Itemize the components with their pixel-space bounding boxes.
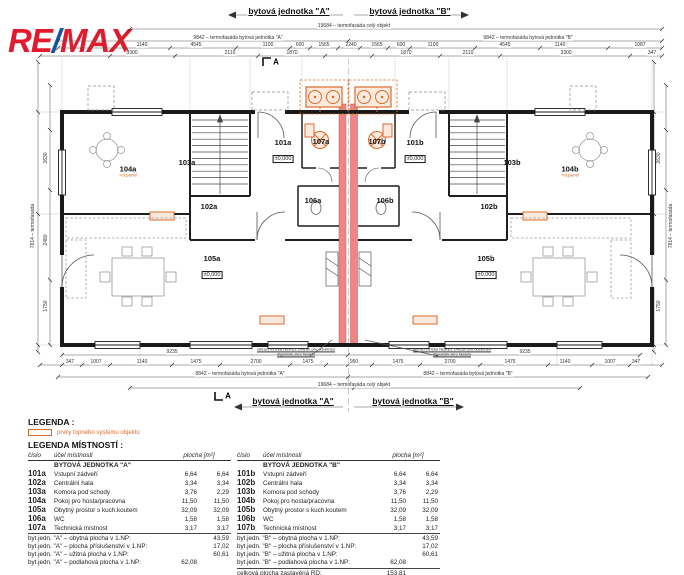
cell-area-1: 3,76 xyxy=(167,489,199,496)
summary-label: byt.jedn. "A" – obytná plocha v 1.NP: xyxy=(28,535,167,542)
summary-row: byt.jedn. "A" – plocha příslušenství v 1… xyxy=(28,543,231,551)
dimension-label: větrací mřížka NEREZ DN160 pro odvětrání… xyxy=(251,347,341,356)
dimension-label: 9235 xyxy=(518,349,531,355)
summary-row: byt.jedn. "B" – plocha příslušenství v 1… xyxy=(237,543,440,551)
room-label: 101b ±0,000 xyxy=(405,139,426,165)
dimension-label: 1565 xyxy=(317,42,330,48)
dimension-label: 1475 xyxy=(503,359,516,365)
summary-value-1: 62,08 xyxy=(167,559,199,566)
room-label: 106a xyxy=(305,197,322,205)
table-row: 102a Centrální hala 3,34 3,34 xyxy=(28,478,231,487)
dimension-label: 4545 xyxy=(498,42,511,48)
cell-number: 103a xyxy=(28,487,54,496)
dimension-label: 9842 – termofasáda bytová jednotka "A" xyxy=(192,35,283,41)
room-number: 105a xyxy=(202,255,223,263)
dimension-label: 347 xyxy=(65,359,75,365)
table-b-summary: byt.jedn. "B" – obytná plocha v 1.NP: 43… xyxy=(237,533,440,567)
dimension-label: 1565 xyxy=(370,42,383,48)
dimension-label: 2480 xyxy=(43,233,49,246)
cell-number: 104b xyxy=(237,496,263,505)
cell-area-1: 3,17 xyxy=(167,525,199,532)
cell-area-2: 1,58 xyxy=(199,516,231,523)
group-unit-a: BYTOVÁ JEDNOTKA "A" xyxy=(28,462,231,469)
summary-value-2: 17,02 xyxy=(199,543,231,550)
dimension-label: 3300 xyxy=(125,50,138,56)
summary-value-2: 43,59 xyxy=(199,535,231,542)
cell-area-2: 6,64 xyxy=(199,471,231,478)
table-b-rows: 101b Vstupní zádveří 6,64 6,64 102b Cent… xyxy=(237,469,440,532)
room-number: 107a xyxy=(313,138,330,146)
col-plocha: plocha [m²] xyxy=(167,452,231,459)
summary-label: byt.jedn. "B" – obytná plocha v 1.NP: xyxy=(237,535,376,542)
table-row: 104a Pokoj pro hosta/pracovna 11,50 11,5… xyxy=(28,496,231,505)
cell-area-1: 6,64 xyxy=(376,471,408,478)
room-number: 102b xyxy=(480,203,497,211)
summary-label: byt.jedn. "B" – plocha příslušenství v 1… xyxy=(237,543,376,550)
dimension-label: 2110 xyxy=(462,50,475,56)
dimension-label: bytová jednotka "A" xyxy=(247,6,330,16)
floor-plan: bytová jednotka "A" bytová jednotka "B" … xyxy=(0,0,684,416)
summary-value-1: 62,08 xyxy=(376,559,408,566)
cell-number: 102b xyxy=(237,478,263,487)
cell-number: 107b xyxy=(237,523,263,532)
dimension-label: 2110 xyxy=(224,50,237,56)
room-number: 106a xyxy=(305,197,322,205)
summary-row: byt.jedn. "B" – obytná plocha v 1.NP: 43… xyxy=(237,535,440,543)
room-number: 106b xyxy=(376,197,393,205)
floor-plan-drawing xyxy=(0,0,684,416)
dimension-label: 1870 xyxy=(399,50,412,56)
cell-area-2: 11,50 xyxy=(408,498,440,505)
col-ucel: účel místnosti xyxy=(263,452,376,459)
dimension-label: 1007 xyxy=(603,359,616,365)
col-cislo: číslo xyxy=(237,452,263,459)
cell-area-2: 3,34 xyxy=(199,480,231,487)
cell-number: 106b xyxy=(237,514,263,523)
dimension-label: 7814 – termofasáda xyxy=(30,203,36,249)
dimension-label: 1870 xyxy=(285,50,298,56)
cell-area-1: 1,58 xyxy=(376,516,408,523)
dimension-label: 1475 xyxy=(391,359,404,365)
cell-area-1: 1,58 xyxy=(167,516,199,523)
dimension-label: 1007 xyxy=(89,359,102,365)
room-label: 102b xyxy=(480,203,497,211)
room-number: 103a xyxy=(179,159,196,167)
room-number: 101a xyxy=(273,139,294,147)
table-row: 106a WC 1,58 1,58 xyxy=(28,514,231,523)
small-rooms-b xyxy=(358,112,399,226)
room-label: 104b +el.panel xyxy=(561,166,579,179)
summary-label: byt.jedn. "B" – podlahová plocha v 1.NP: xyxy=(237,559,376,566)
cell-room-name: Technická místnost xyxy=(263,525,376,532)
cell-number: 105a xyxy=(28,505,54,514)
dimension-label: 600 xyxy=(396,42,406,48)
dimension-label: 1140 xyxy=(554,42,567,48)
dimension-label: 1750 xyxy=(43,299,49,312)
summary-value-2: 60,61 xyxy=(408,551,440,558)
cell-number: 103b xyxy=(237,487,263,496)
dimension-label: 2630 xyxy=(656,151,662,164)
room-number: 107b xyxy=(368,138,385,146)
legend-heating: LEGENDA : prvky topného systému objektu xyxy=(28,417,140,436)
cell-area-1: 11,50 xyxy=(167,498,199,505)
room-level: ±0,000 xyxy=(273,155,294,164)
cell-number: 106a xyxy=(28,514,54,523)
dimension-label: 347 xyxy=(631,359,641,365)
col-plocha: plocha [m²] xyxy=(376,452,440,459)
cell-number: 104a xyxy=(28,496,54,505)
interior-walls-b xyxy=(358,112,652,240)
dimension-label: 2700 xyxy=(443,359,456,365)
col-ucel: účel místnosti xyxy=(54,452,167,459)
dimension-label: 2630 xyxy=(43,151,49,164)
summary-label: byt.jedn. "B" – užitná plocha v 1.NP: xyxy=(237,551,376,558)
heating-swatch xyxy=(28,429,52,436)
cell-area-2: 3,17 xyxy=(408,525,440,532)
cell-number: 101a xyxy=(28,469,54,478)
dimension-label: 600 xyxy=(295,42,305,48)
dimension-label: 950 xyxy=(349,359,359,365)
cell-area-1: 3,34 xyxy=(376,480,408,487)
group-unit-b: BYTOVÁ JEDNOTKA "B" xyxy=(237,462,440,469)
summary-row: byt.jedn. "A" – obytná plocha v 1.NP: 43… xyxy=(28,535,231,543)
room-label: 107a xyxy=(313,138,330,146)
dimension-label: 1750 xyxy=(656,299,662,312)
table-row: 105b Obytný prostor s kuch.koutem 32,09 … xyxy=(237,505,440,514)
room-level: ±0,000 xyxy=(476,271,497,280)
room-number: 102a xyxy=(201,203,218,211)
total-row: celková plocha zastavěná RD: 153,81 xyxy=(237,568,440,575)
room-label: 104a +el.panel xyxy=(119,166,137,179)
summary-row: byt.jedn. "B" – podlahová plocha v 1.NP:… xyxy=(237,559,440,567)
summary-row: byt.jedn. "A" – užitná plocha v 1.NP: 60… xyxy=(28,551,231,559)
room-label: 105b ±0,000 xyxy=(476,255,497,281)
dimension-label: 19684 – termofasáda celý objekt xyxy=(317,382,391,388)
col-cislo: číslo xyxy=(28,452,54,459)
cell-area-2: 2,29 xyxy=(408,489,440,496)
cell-room-name: Obytný prostor s kuch.koutem xyxy=(54,507,167,514)
cell-number: 102a xyxy=(28,478,54,487)
total-value: 153,81 xyxy=(376,570,408,575)
dimension-label: větrací mřížka NEREZ DN160 pro odvětrání… xyxy=(407,347,497,356)
table-row: 107b Technická místnost 3,17 3,17 xyxy=(237,523,440,532)
summary-row: byt.jedn. "B" – užitná plocha v 1.NP: 60… xyxy=(237,551,440,559)
summary-value-2: 17,02 xyxy=(408,543,440,550)
dimension-label: 8842 – termofasáda bytová jednotka "A" xyxy=(194,371,285,377)
summary-row: byt.jedn. "A" – podlahová plocha v 1.NP:… xyxy=(28,559,231,567)
dimension-label: A xyxy=(272,58,280,67)
room-number: 103b xyxy=(503,159,520,167)
room-sub-label: +el.panel xyxy=(561,173,579,178)
dimension-label: 3300 xyxy=(559,50,572,56)
cell-area-2: 6,64 xyxy=(408,471,440,478)
cell-room-name: Centrální hala xyxy=(263,480,376,487)
cell-area-2: 32,09 xyxy=(199,507,231,514)
dimension-label: 1087 xyxy=(633,42,646,48)
cell-room-name: Pokoj pro hosta/pracovna xyxy=(54,498,167,505)
stairs-b xyxy=(449,115,505,194)
room-label: 102a xyxy=(201,203,218,211)
room-label: 101a ±0,000 xyxy=(273,139,294,165)
legend-rooms-header: LEGENDA MÍSTNOSTÍ : xyxy=(28,440,123,450)
summary-value-2: 60,61 xyxy=(199,551,231,558)
summary-label: byt.jedn. "A" – plocha příslušenství v 1… xyxy=(28,543,167,550)
dimension-label: 7814 – termofasáda xyxy=(668,203,674,249)
dimension-label: 9235 xyxy=(165,349,178,355)
cell-area-1: 6,64 xyxy=(167,471,199,478)
stairs-a xyxy=(192,115,248,194)
dimension-label: 1140 xyxy=(136,359,149,365)
rooms-table-unit-a: číslo účel místnosti plocha [m²] BYTOVÁ … xyxy=(28,452,231,567)
legend-title: LEGENDA : xyxy=(28,417,140,427)
dimension-label: 19684 – termofasáda celý objekt xyxy=(317,23,391,29)
cell-number: 101b xyxy=(237,469,263,478)
dimension-label: 8842 – termofasáda bytová jednotka "B" xyxy=(422,371,513,377)
summary-label: byt.jedn. "A" – užitná plocha v 1.NP: xyxy=(28,551,167,558)
cell-room-name: Komora pod schody xyxy=(263,489,376,496)
cell-area-2: 2,29 xyxy=(199,489,231,496)
dimension-label: 1140 xyxy=(559,359,572,365)
table-row: 101a Vstupní zádveří 6,64 6,64 xyxy=(28,469,231,478)
table-row: 104b Pokoj pro hosta/pracovna 11,50 11,5… xyxy=(237,496,440,505)
dimension-label: 9842 – termofasáda bytová jednotka "B" xyxy=(482,35,573,41)
room-label: 107b xyxy=(368,138,385,146)
room-label: 106b xyxy=(376,197,393,205)
summary-value-2: 43,59 xyxy=(408,535,440,542)
dimension-label: 2700 xyxy=(249,359,262,365)
cell-room-name: Obytný prostor s kuch.koutem xyxy=(263,507,376,514)
table-row: 103b Komora pod schody 3,76 2,29 xyxy=(237,487,440,496)
cell-room-name: Komora pod schody xyxy=(54,489,167,496)
small-rooms-a xyxy=(298,112,339,226)
cell-area-1: 32,09 xyxy=(167,507,199,514)
rooms-table-unit-b: číslo účel místnosti plocha [m²] BYTOVÁ … xyxy=(237,452,440,575)
cell-area-1: 11,50 xyxy=(376,498,408,505)
summary-label: byt.jedn. "A" – podlahová plocha v 1.NP: xyxy=(28,559,167,566)
dimension-label: 1100 xyxy=(427,42,440,48)
dimension-label: 1140 xyxy=(136,42,149,48)
room-level: ±0,000 xyxy=(202,271,223,280)
dimension-label: bytová jednotka "A" xyxy=(251,396,334,406)
cell-room-name: Pokoj pro hosta/pracovna xyxy=(263,498,376,505)
total-label: celková plocha zastavěná RD: xyxy=(237,570,376,575)
room-label: 105a ±0,000 xyxy=(202,255,223,281)
cell-area-2: 32,09 xyxy=(408,507,440,514)
table-row: 107a Technická místnost 3,17 3,17 xyxy=(28,523,231,532)
cell-area-1: 3,17 xyxy=(376,525,408,532)
dimension-label: 1100 xyxy=(262,42,275,48)
table-row: 106b WC 1,58 1,58 xyxy=(237,514,440,523)
cell-number: 107a xyxy=(28,523,54,532)
cell-room-name: WC xyxy=(54,516,167,523)
room-number: 101b xyxy=(405,139,426,147)
dimension-label: 1475 xyxy=(189,359,202,365)
dimension-label: 1475 xyxy=(301,359,314,365)
cell-area-2: 3,34 xyxy=(408,480,440,487)
cell-room-name: Vstupní zádveří xyxy=(54,471,167,478)
table-row: 102b Centrální hala 3,34 3,34 xyxy=(237,478,440,487)
room-label: 103b xyxy=(503,159,520,167)
cell-number: 105b xyxy=(237,505,263,514)
table-row: 101b Vstupní zádveří 6,64 6,64 xyxy=(237,469,440,478)
cell-area-2: 11,50 xyxy=(199,498,231,505)
cell-room-name: Centrální hala xyxy=(54,480,167,487)
table-a-summary: byt.jedn. "A" – obytná plocha v 1.NP: 43… xyxy=(28,533,231,567)
cell-room-name: Technická místnost xyxy=(54,525,167,532)
dimension-label: bytová jednotka "B" xyxy=(371,396,454,406)
cell-area-1: 3,76 xyxy=(376,489,408,496)
cell-room-name: Vstupní zádveří xyxy=(263,471,376,478)
rooms-legend-title: LEGENDA MÍSTNOSTÍ : xyxy=(28,440,123,450)
dimension-label: bytová jednotka "B" xyxy=(368,6,451,16)
room-label: 103a xyxy=(179,159,196,167)
cell-area-1: 32,09 xyxy=(376,507,408,514)
table-a-rows: 101a Vstupní zádveří 6,64 6,64 102a Cent… xyxy=(28,469,231,532)
room-level: ±0,000 xyxy=(405,155,426,164)
dimension-label: 347 xyxy=(647,50,657,56)
table-b-header: číslo účel místnosti plocha [m²] xyxy=(237,452,440,461)
room-sub-label: +el.panel xyxy=(119,173,137,178)
dimension-label: 2240 xyxy=(344,42,357,48)
cell-area-2: 3,17 xyxy=(199,525,231,532)
cell-area-1: 3,34 xyxy=(167,480,199,487)
table-row: 105a Obytný prostor s kuch.koutem 32,09 … xyxy=(28,505,231,514)
dimension-label: 4545 xyxy=(189,42,202,48)
room-number: 105b xyxy=(476,255,497,263)
vent-shafts xyxy=(310,252,438,356)
heating-legend-label: prvky topného systému objektu xyxy=(57,430,140,436)
table-a-header: číslo účel místnosti plocha [m²] xyxy=(28,452,231,461)
table-row: 103a Komora pod schody 3,76 2,29 xyxy=(28,487,231,496)
dimension-label: A xyxy=(224,392,232,401)
cell-area-2: 1,58 xyxy=(408,516,440,523)
cell-room-name: WC xyxy=(263,516,376,523)
drawing-sheet: RE/MAX xyxy=(0,0,684,575)
